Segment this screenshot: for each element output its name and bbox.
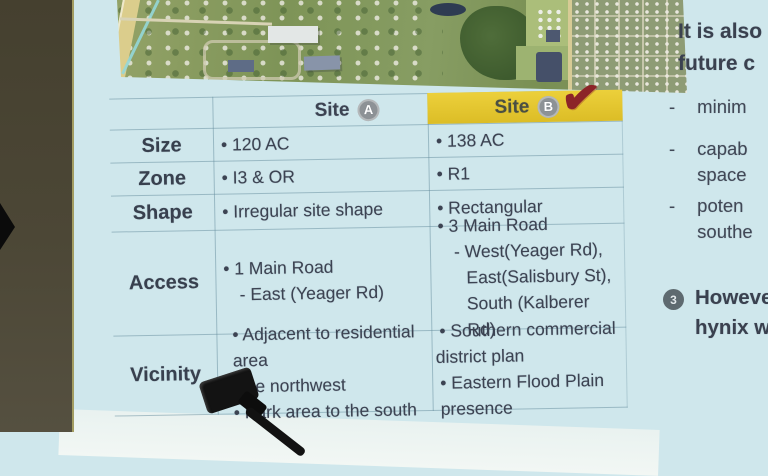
row-label-size: Size xyxy=(110,128,214,163)
site-a-badge: A xyxy=(357,98,379,120)
step-3-badge: 3 xyxy=(663,289,684,310)
cell-line: • Eastern Flood Plain presence xyxy=(440,367,624,422)
site-a-label: Site xyxy=(314,97,349,124)
zone-site-b: • R1 xyxy=(428,154,624,190)
access-site-b: • 3 Main Road - West(Yeager Rd), East(Sa… xyxy=(430,223,627,330)
map-pond xyxy=(430,3,466,16)
map-building xyxy=(304,55,340,70)
selected-checkmark-icon: ✔ xyxy=(559,72,603,122)
map-building xyxy=(268,26,318,43)
cell-line: district plan xyxy=(436,341,623,370)
shape-site-a: • Irregular site shape xyxy=(214,190,430,230)
map-dark-roofs xyxy=(546,30,560,42)
size-site-b: • 138 AC xyxy=(428,121,624,157)
cell-line: - West(Yeager Rd), xyxy=(438,236,621,265)
cell-line: • Adjacent to residential area xyxy=(224,318,428,374)
row-label-access: Access xyxy=(112,230,217,336)
map-building xyxy=(228,60,254,72)
site-b-label: Site xyxy=(494,94,529,121)
cell-line: • 120 AC xyxy=(221,128,424,158)
cell-line: • 1 Main Road xyxy=(223,252,426,282)
cell-line: • I3 & OR xyxy=(221,161,424,191)
dash: - xyxy=(669,136,675,188)
bullet-line: minim xyxy=(697,94,746,120)
cell-line: - East (Yeager Rd) xyxy=(223,278,426,308)
row-label-vicinity: Vicinity xyxy=(113,334,217,416)
comparison-table: Site A Site B ✔ Size • 120 AC • 138 AC Z… xyxy=(109,90,627,417)
cell-line: East(Salisbury St), xyxy=(438,262,621,291)
row-label-zone: Zone xyxy=(110,161,214,196)
dash: - xyxy=(669,193,675,245)
cell-line: • 138 AC xyxy=(436,124,619,153)
cell-line: • 3 Main Road xyxy=(437,210,620,239)
numbered-line: hynix wi xyxy=(695,313,768,343)
bullet-line: southe xyxy=(697,219,753,245)
right-text-panel: It is also future c - minim - capab spac… xyxy=(655,0,768,432)
row-label-shape: Shape xyxy=(111,194,215,232)
numbered-line: However xyxy=(695,283,768,313)
site-b-badge: B xyxy=(537,95,559,117)
bullet-line: space xyxy=(697,162,747,188)
cell-line: • Southern commercial xyxy=(439,315,622,344)
site-a-header: Site A xyxy=(212,93,428,128)
cell-line: • R1 xyxy=(436,157,619,186)
heading-line: It is also xyxy=(678,16,762,48)
bullet-line: poten xyxy=(697,193,753,219)
bullet-line: capab xyxy=(697,136,747,162)
panel-bullet: - minim xyxy=(669,94,747,120)
map-dark-roofs xyxy=(536,52,562,82)
aerial-map-image xyxy=(108,0,690,100)
zone-site-a: • I3 & OR xyxy=(213,157,429,194)
panel-bullet: - capab space xyxy=(669,136,748,188)
vicinity-site-b: • Southern commercial district plan • Ea… xyxy=(431,327,627,410)
foreground-silhouette xyxy=(0,203,15,250)
dash: - xyxy=(669,94,675,120)
panel-bullet: - poten southe xyxy=(669,193,753,245)
panel-heading: It is also future c xyxy=(678,16,762,80)
size-site-a: • 120 AC xyxy=(213,124,429,161)
cell-line: • Irregular site shape xyxy=(222,195,425,225)
heading-line: future c xyxy=(678,48,762,80)
panel-numbered-item: 3 However hynix wi xyxy=(663,283,768,343)
